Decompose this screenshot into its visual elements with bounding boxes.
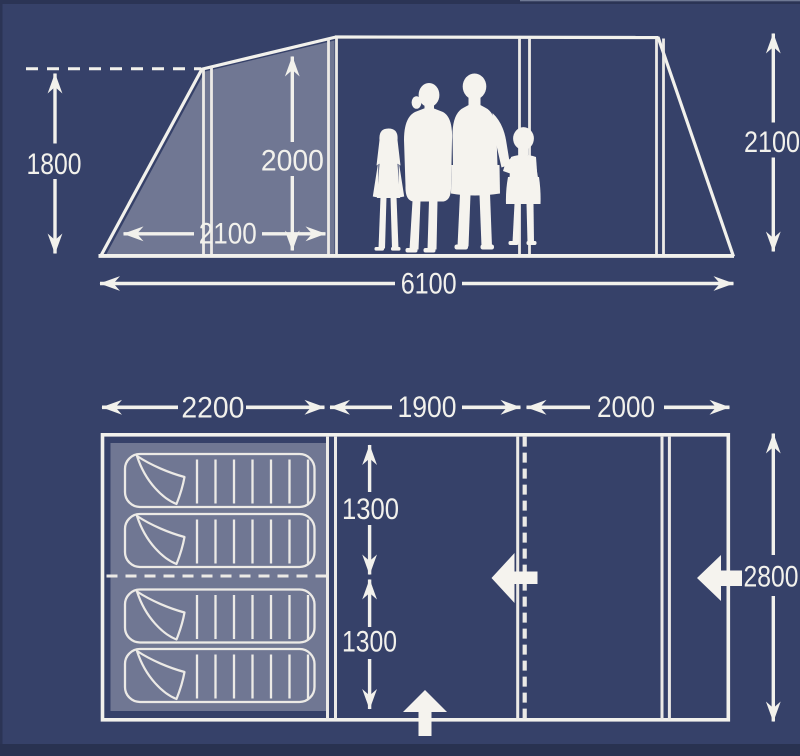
svg-text:2800: 2800 [744, 561, 799, 594]
svg-text:2000: 2000 [261, 145, 324, 178]
svg-text:1300: 1300 [342, 626, 397, 659]
svg-text:2200: 2200 [181, 392, 244, 425]
svg-text:1300: 1300 [342, 493, 399, 526]
svg-text:6100: 6100 [401, 268, 457, 301]
svg-text:2100: 2100 [744, 126, 800, 159]
svg-text:1900: 1900 [398, 391, 457, 424]
svg-text:1800: 1800 [27, 148, 82, 181]
svg-text:2000: 2000 [597, 391, 655, 424]
svg-text:2100: 2100 [199, 218, 257, 251]
